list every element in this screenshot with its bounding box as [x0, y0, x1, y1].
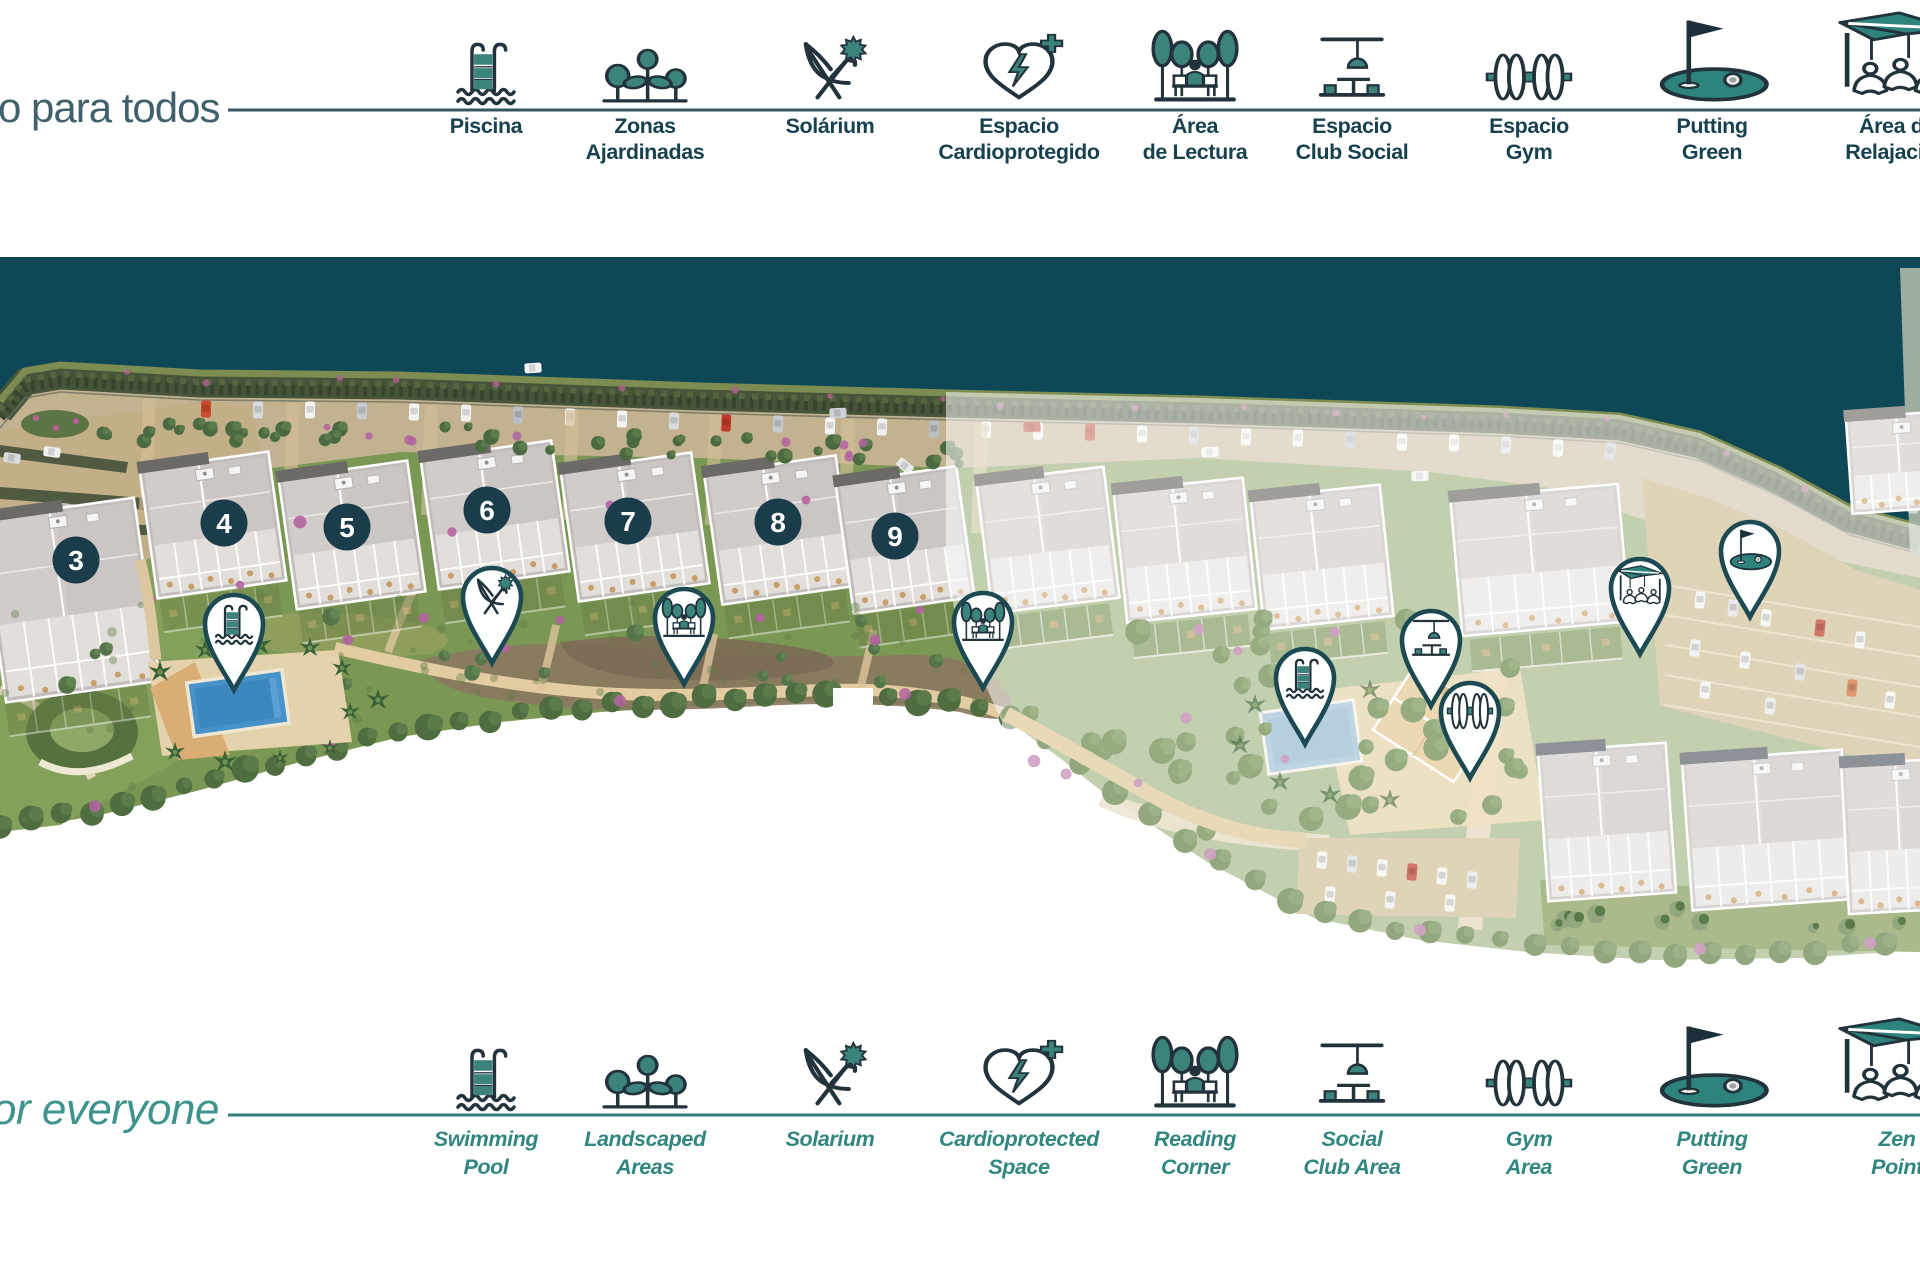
- svg-text:Piscina: Piscina: [450, 114, 524, 138]
- svg-text:Green: Green: [1682, 140, 1742, 164]
- svg-text:Club Area: Club Area: [1303, 1155, 1401, 1179]
- svg-text:Espacio: Espacio: [1489, 114, 1569, 138]
- svg-text:Social: Social: [1322, 1127, 1384, 1151]
- svg-text:Cardioprotected: Cardioprotected: [939, 1127, 1100, 1151]
- svg-text:6: 6: [479, 495, 495, 526]
- svg-text:Área de: Área de: [1859, 113, 1920, 138]
- svg-text:Putting: Putting: [1676, 1127, 1747, 1151]
- svg-text:Solárium: Solárium: [786, 114, 875, 138]
- svg-text:Green: Green: [1682, 1155, 1742, 1179]
- svg-text:Landscaped: Landscaped: [584, 1127, 707, 1151]
- svg-text:Space: Space: [988, 1155, 1050, 1179]
- svg-text:Gym: Gym: [1506, 1127, 1553, 1151]
- svg-text:Ajardinadas: Ajardinadas: [586, 140, 705, 164]
- svg-text:7: 7: [620, 506, 636, 537]
- svg-text:Reading: Reading: [1154, 1127, 1236, 1151]
- svg-text:de Lectura: de Lectura: [1143, 140, 1249, 164]
- svg-text:4: 4: [216, 508, 232, 539]
- svg-text:8: 8: [770, 507, 786, 538]
- svg-text:Area: Area: [1505, 1155, 1553, 1179]
- svg-text:or everyone: or everyone: [0, 1085, 219, 1134]
- svg-text:Espacio: Espacio: [1312, 114, 1392, 138]
- svg-text:Área: Área: [1172, 113, 1220, 138]
- svg-text:3: 3: [68, 545, 84, 576]
- svg-text:Gym: Gym: [1506, 140, 1553, 164]
- svg-text:Swimming: Swimming: [434, 1127, 539, 1151]
- svg-text:Solarium: Solarium: [786, 1127, 875, 1151]
- svg-text:Zonas: Zonas: [614, 114, 676, 138]
- svg-text:Corner: Corner: [1161, 1155, 1231, 1179]
- svg-text:Point: Point: [1871, 1155, 1920, 1179]
- svg-text:o para todos: o para todos: [0, 84, 220, 131]
- svg-text:Espacio: Espacio: [979, 114, 1059, 138]
- svg-text:5: 5: [339, 512, 355, 543]
- svg-text:9: 9: [887, 521, 903, 552]
- svg-text:Relajación: Relajación: [1845, 140, 1920, 164]
- svg-text:Putting: Putting: [1676, 114, 1747, 138]
- svg-text:Pool: Pool: [464, 1155, 510, 1179]
- svg-text:Areas: Areas: [615, 1155, 674, 1179]
- svg-text:Cardioprotegido: Cardioprotegido: [938, 140, 1099, 164]
- svg-text:Club Social: Club Social: [1296, 140, 1409, 164]
- svg-text:Zen: Zen: [1877, 1127, 1915, 1151]
